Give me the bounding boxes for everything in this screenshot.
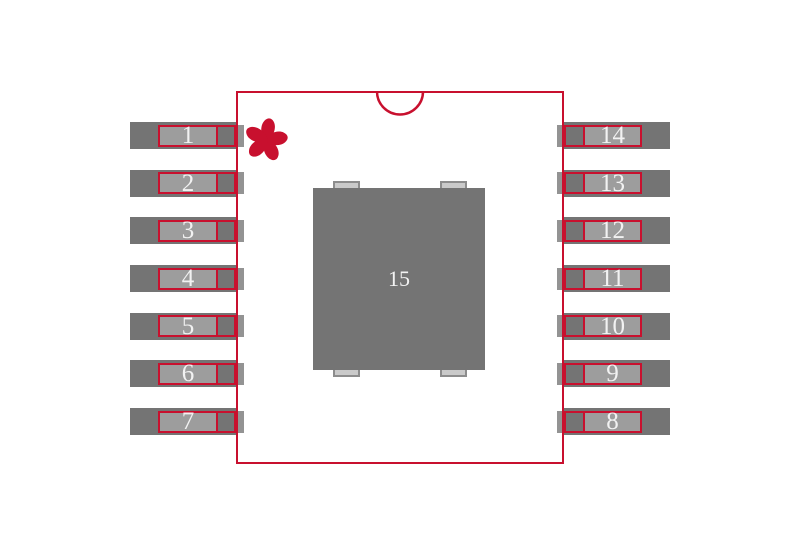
pad-lead-outline-right-10: 10 [564,315,642,337]
pin-number-2: 2 [182,171,195,196]
pad-lead-exposed-left-2: 2 [160,174,218,192]
pad-lead-hidden-right-10 [566,317,583,335]
pin-number-11: 11 [600,266,624,291]
pad-lead-hidden-right-9 [566,365,583,383]
thermal-pad-number: 15 [388,268,410,290]
pad-lead-hidden-left-7 [218,413,234,431]
pad-lead-outline-right-13: 13 [564,172,642,194]
pad-lead-outline-left-1: 1 [158,125,236,147]
pad-lead-hidden-left-2 [218,174,234,192]
pin-number-12: 12 [600,218,625,243]
pad-lead-hidden-right-8 [566,413,583,431]
pad-lead-exposed-right-10: 10 [583,317,640,335]
pad-lead-outline-left-2: 2 [158,172,236,194]
package-notch-icon [374,89,426,119]
pin-number-6: 6 [182,361,195,386]
pin-number-7: 7 [182,409,195,434]
pad-lead-exposed-right-8: 8 [583,413,640,431]
pad-lead-exposed-right-9: 9 [583,365,640,383]
thermal-pad: 15 [313,188,485,370]
pad-lead-outline-left-6: 6 [158,363,236,385]
pad-lead-outline-left-5: 5 [158,315,236,337]
pin-number-5: 5 [182,314,195,339]
pad-lead-outline-left-3: 3 [158,220,236,242]
pin-number-4: 4 [182,266,195,291]
pad-lead-outline-right-8: 8 [564,411,642,433]
pad-lead-hidden-right-12 [566,222,583,240]
pin-number-3: 3 [182,218,195,243]
pad-lead-hidden-left-6 [218,365,234,383]
pad-lead-outline-right-14: 14 [564,125,642,147]
pad-lead-hidden-left-3 [218,222,234,240]
pad-lead-exposed-right-12: 12 [583,222,640,240]
pin1-asterisk-icon [240,114,292,166]
pin-number-8: 8 [606,409,619,434]
pad-lead-outline-right-9: 9 [564,363,642,385]
pad-lead-outline-right-12: 12 [564,220,642,242]
pad-lead-hidden-right-14 [566,127,583,145]
pad-lead-exposed-left-4: 4 [160,270,218,288]
pad-lead-exposed-right-14: 14 [583,127,640,145]
pad-lead-hidden-left-4 [218,270,234,288]
pin-number-10: 10 [600,314,625,339]
pad-lead-exposed-left-1: 1 [160,127,218,145]
pad-lead-outline-left-4: 4 [158,268,236,290]
pin-number-13: 13 [600,171,625,196]
pad-lead-hidden-left-5 [218,317,234,335]
pad-lead-exposed-left-7: 7 [160,413,218,431]
pin-number-1: 1 [182,123,195,148]
pin-number-9: 9 [606,361,619,386]
pad-lead-exposed-right-13: 13 [583,174,640,192]
pad-lead-outline-left-7: 7 [158,411,236,433]
pad-lead-exposed-right-11: 11 [583,270,640,288]
pad-lead-hidden-right-11 [566,270,583,288]
pad-lead-exposed-left-6: 6 [160,365,218,383]
pad-lead-outline-right-11: 11 [564,268,642,290]
pad-lead-exposed-left-5: 5 [160,317,218,335]
footprint-diagram: 1234567141312111098 15 [0,0,800,558]
pad-lead-hidden-right-13 [566,174,583,192]
pin-number-14: 14 [600,123,625,148]
pad-lead-hidden-left-1 [218,127,234,145]
pad-lead-exposed-left-3: 3 [160,222,218,240]
